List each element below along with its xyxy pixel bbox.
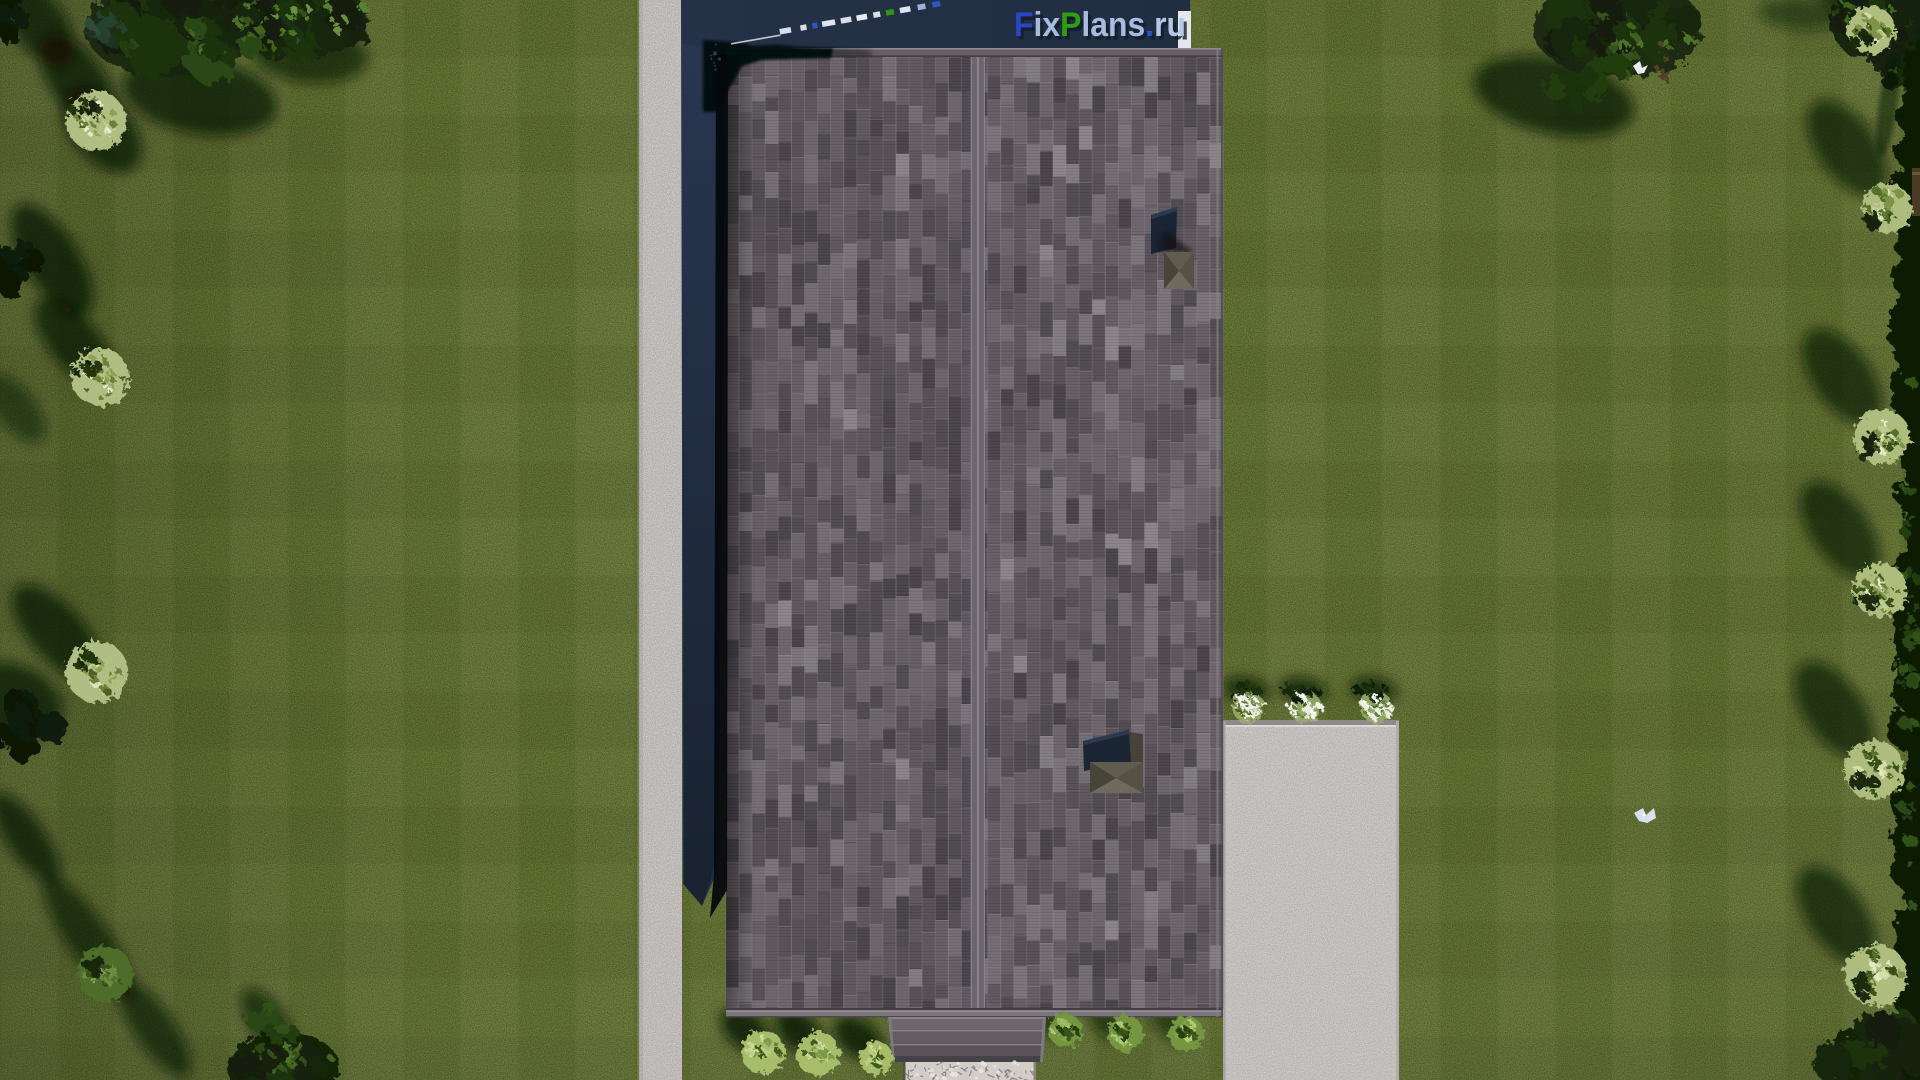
svg-text:FixPlans.ru: FixPlans.ru [1014,6,1186,44]
